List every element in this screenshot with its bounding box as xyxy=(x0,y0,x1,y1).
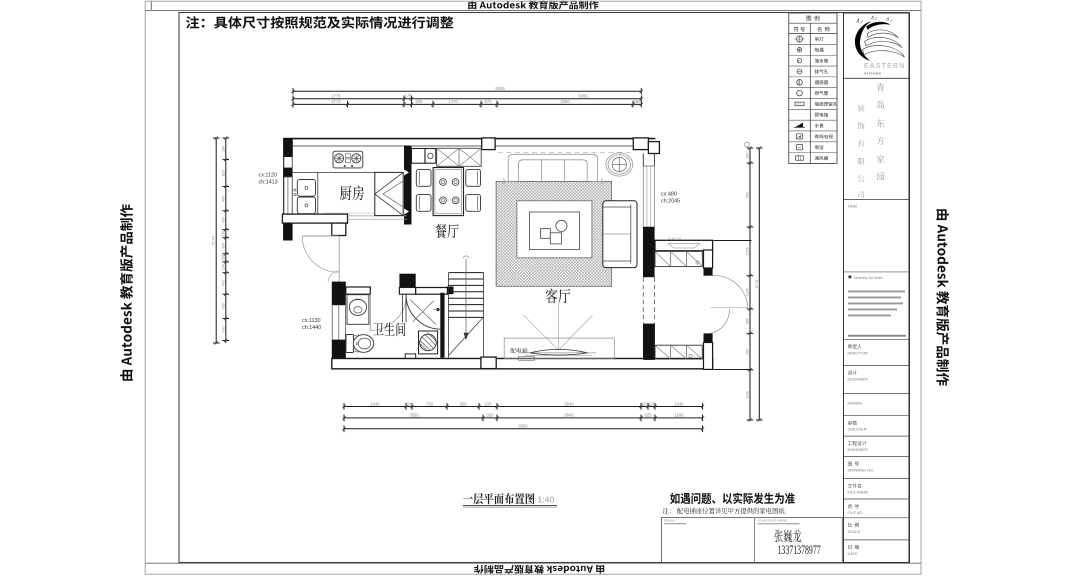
svg-text:220: 220 xyxy=(648,401,656,406)
svg-text:730: 730 xyxy=(426,401,434,406)
svg-text:DRAWING NO.: DRAWING NO. xyxy=(848,468,875,473)
svg-text:1:40: 1:40 xyxy=(538,495,555,505)
svg-text:320: 320 xyxy=(487,413,495,418)
svg-text:2775: 2775 xyxy=(331,99,341,104)
svg-text:FILE NO.: FILE NO. xyxy=(848,510,864,515)
svg-text:cx:1130: cx:1130 xyxy=(302,318,320,324)
svg-text:400: 400 xyxy=(221,196,225,202)
svg-text:1535: 1535 xyxy=(746,247,750,255)
svg-text:400: 400 xyxy=(221,280,225,286)
svg-text:820: 820 xyxy=(221,170,225,176)
svg-text:3040: 3040 xyxy=(564,401,574,406)
svg-text:ENGINEER: ENGINEER xyxy=(848,447,869,452)
svg-text:850: 850 xyxy=(746,318,750,324)
svg-text:370: 370 xyxy=(485,99,493,104)
svg-text:Served by Da Gmbh: Served by Da Gmbh xyxy=(854,276,883,280)
svg-text:150: 150 xyxy=(221,231,225,237)
svg-text:1160: 1160 xyxy=(746,391,750,399)
svg-text:KITCHEN: KITCHEN xyxy=(865,72,882,76)
svg-text:5770: 5770 xyxy=(212,236,216,244)
svg-text:220: 220 xyxy=(485,401,493,406)
svg-text:280: 280 xyxy=(221,146,225,152)
svg-text:cx:480: cx:480 xyxy=(661,192,677,198)
svg-text:5770: 5770 xyxy=(755,280,759,288)
svg-text:5065: 5065 xyxy=(578,93,588,98)
svg-text:1940: 1940 xyxy=(370,401,380,406)
svg-text:1205: 1205 xyxy=(746,288,750,296)
svg-text:FILE NAME: FILE NAME xyxy=(848,490,869,495)
svg-text:325: 325 xyxy=(645,413,653,418)
svg-text:3350: 3350 xyxy=(560,99,570,104)
svg-text:150: 150 xyxy=(221,255,225,261)
svg-text:300: 300 xyxy=(221,243,225,249)
svg-text:DATE: DATE xyxy=(848,551,858,556)
svg-text:1470: 1470 xyxy=(448,99,458,104)
svg-text:175: 175 xyxy=(405,93,413,98)
svg-text:CONSULTANT PHONE: CONSULTANT PHONE xyxy=(758,519,787,523)
svg-text:365: 365 xyxy=(746,349,750,355)
svg-text:1160: 1160 xyxy=(674,413,684,418)
svg-text:500: 500 xyxy=(746,192,750,198)
svg-text:cx:1120: cx:1120 xyxy=(259,172,277,178)
svg-text:350: 350 xyxy=(460,401,468,406)
svg-text:DIRECTOR: DIRECTOR xyxy=(848,350,868,355)
svg-text:EASTERN: EASTERN xyxy=(864,63,905,70)
svg-text:ch:1440: ch:1440 xyxy=(302,325,321,331)
svg-text:450: 450 xyxy=(221,217,225,223)
svg-text:8365: 8365 xyxy=(495,86,505,91)
svg-text:ITEM: ITEM xyxy=(848,205,857,209)
svg-text:ch:1413: ch:1413 xyxy=(259,179,278,185)
svg-text:ch:2045: ch:2045 xyxy=(661,198,680,204)
svg-text:CHECKER: CHECKER xyxy=(848,427,867,432)
svg-text:100: 100 xyxy=(221,264,225,270)
svg-text:8365: 8365 xyxy=(518,424,528,429)
svg-text:M 40 3M: M 40 3M xyxy=(668,237,681,241)
svg-text:1240: 1240 xyxy=(674,401,684,406)
svg-text:SCALE: SCALE xyxy=(848,529,861,534)
svg-text:3040: 3040 xyxy=(564,413,574,418)
svg-text:2775: 2775 xyxy=(331,93,341,98)
svg-text:DRAWN: DRAWN xyxy=(848,401,863,406)
svg-text:350: 350 xyxy=(634,99,642,104)
svg-text:450: 450 xyxy=(221,303,225,309)
svg-text:13371378977: 13371378977 xyxy=(778,543,822,558)
svg-text:160: 160 xyxy=(746,153,750,159)
svg-text:200: 200 xyxy=(416,99,424,104)
svg-text:410: 410 xyxy=(221,327,225,333)
svg-text:DESIGNER: DESIGNER xyxy=(848,376,869,381)
svg-text:220: 220 xyxy=(406,401,414,406)
svg-text:3530: 3530 xyxy=(409,413,419,418)
svg-text:DESIGN: DESIGN xyxy=(664,519,675,523)
